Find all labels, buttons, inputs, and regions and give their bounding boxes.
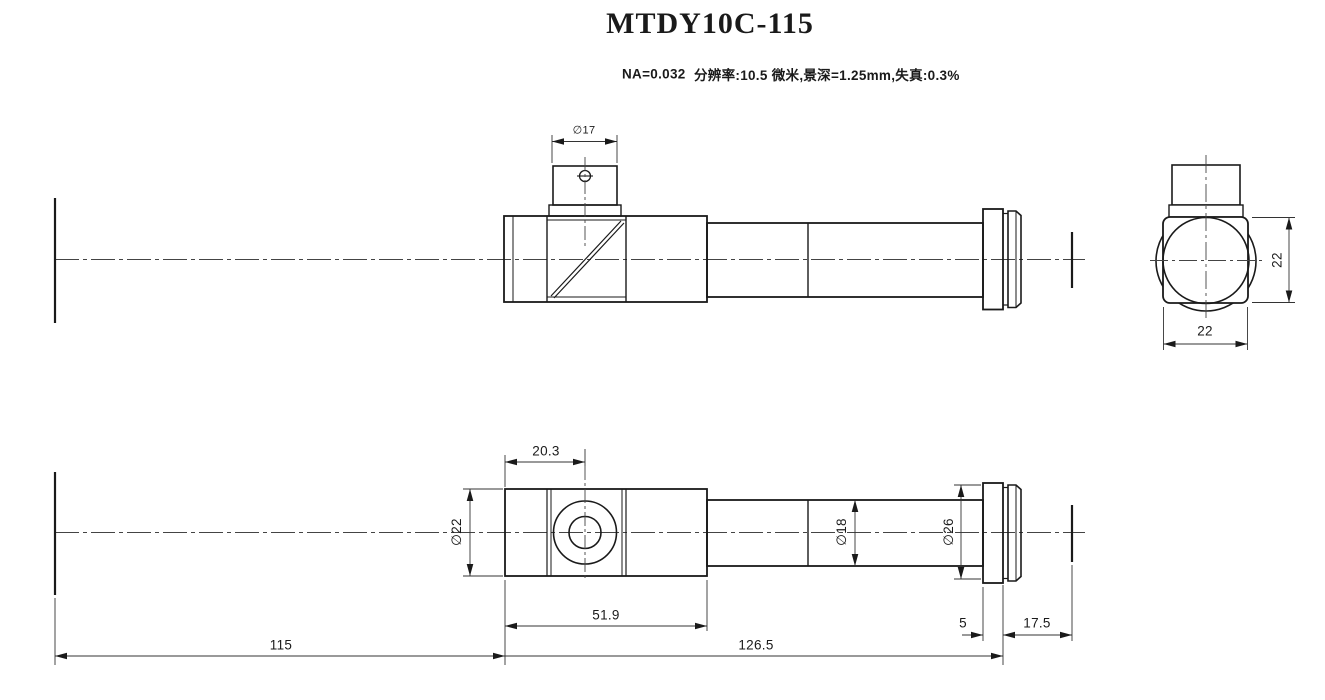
dim-label-body-dia: ∅22 — [449, 518, 465, 546]
plan-view — [55, 449, 1085, 665]
spec-na-label: NA=0.032 — [622, 67, 686, 82]
dim-label-eyepiece-dia: ∅17 — [573, 124, 596, 137]
prism-housing-outline — [504, 216, 707, 302]
dim-label-head-height: 22 — [1270, 252, 1285, 268]
barrel-tube — [707, 223, 983, 297]
plan-view-dimension-lines — [55, 449, 1072, 665]
mounting-flange-2 — [983, 483, 1003, 583]
drawing-title: MTDY10C-115 — [606, 7, 814, 41]
dim-label-barrel-length: 126.5 — [738, 638, 773, 653]
side-elevation-view — [55, 135, 1085, 323]
drawing-geometry — [0, 0, 1325, 700]
dim-label-head-width: 22 — [1197, 324, 1213, 339]
dim-label-working-distance: 17.5 — [1023, 616, 1050, 631]
spec-detail-label: 分辨率:10.5 微米,景深=1.25mm,失真:0.3% — [694, 64, 960, 84]
dim-eyepiece-dia-lines — [552, 135, 617, 163]
dim-label-port-offset: 20.3 — [532, 444, 559, 459]
dim-label-flange-width: 5 — [959, 616, 967, 631]
dim-label-head-length: 51.9 — [592, 608, 619, 623]
engineering-drawing-sheet: MTDY10C-115 NA=0.032 分辨率:10.5 微米,景深=1.25… — [0, 0, 1325, 700]
dim-label-image-distance: 115 — [270, 638, 292, 653]
dim-label-tube-dia: ∅18 — [834, 518, 850, 546]
front-ring-2 — [1008, 485, 1021, 581]
dim-label-flange-dia: ∅26 — [941, 518, 957, 546]
